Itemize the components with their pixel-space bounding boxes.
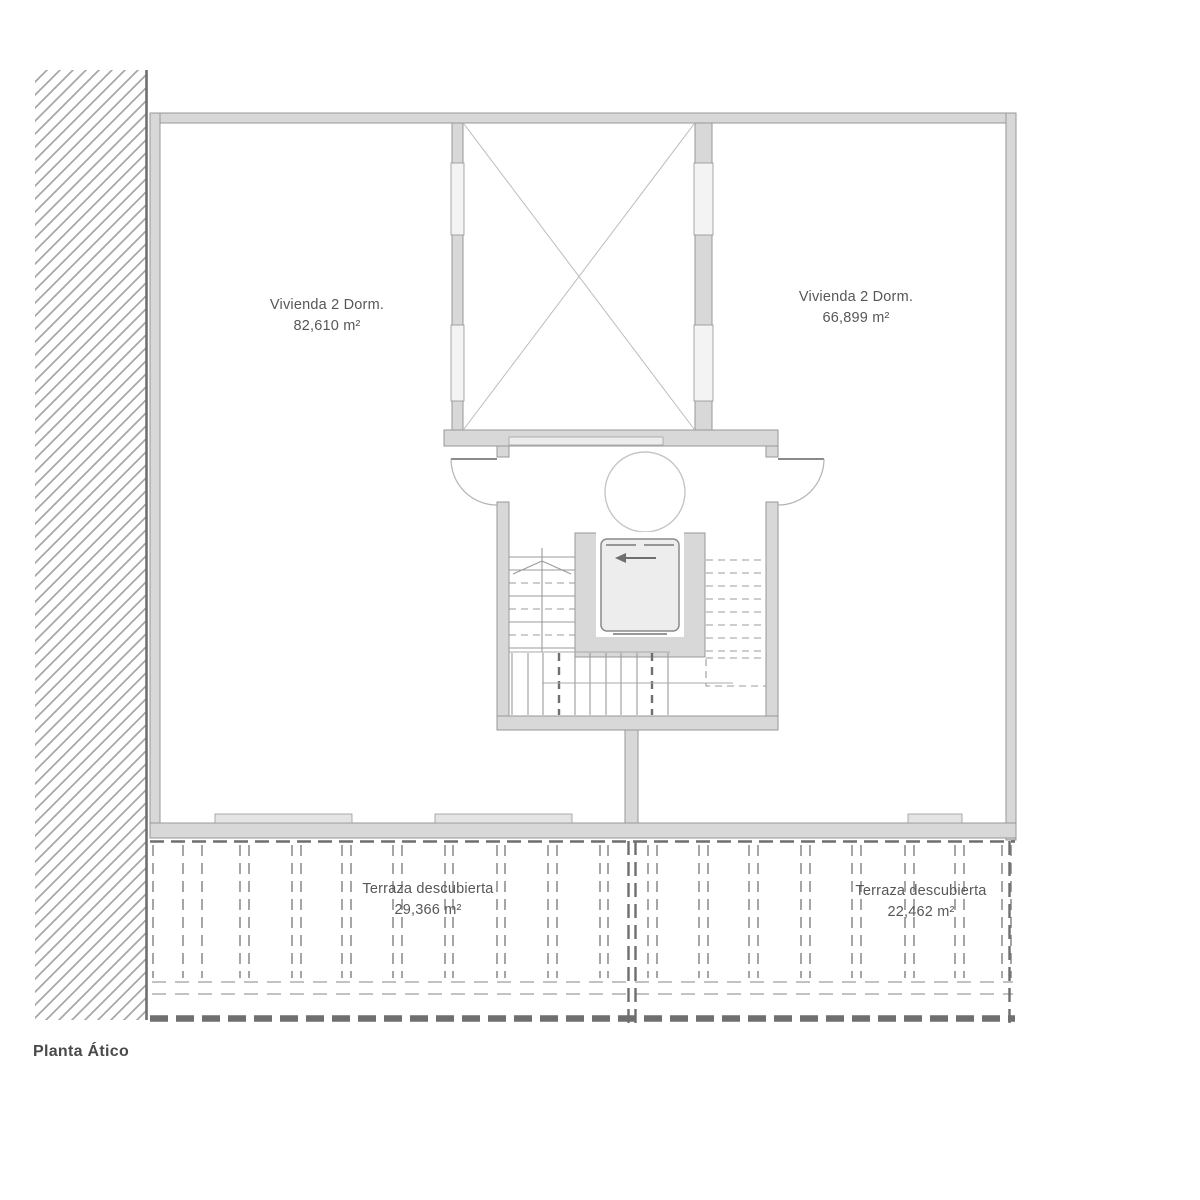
room-area: 29,366 m²	[362, 900, 493, 921]
room-name: Vivienda 2 Dorm.	[799, 287, 913, 308]
terrace-boundaries	[150, 841, 1015, 1023]
adjacent-building-hatch	[35, 70, 147, 1020]
room-label-vivienda-right: Vivienda 2 Dorm. 66,899 m²	[799, 287, 913, 329]
page-title: Planta Ático	[33, 1043, 129, 1061]
room-area: 66,899 m²	[799, 308, 913, 329]
room-name: Terraza descubierta	[362, 879, 493, 900]
room-label-terraza-right: Terraza descubierta 22,462 m²	[855, 881, 986, 923]
door-right	[778, 459, 824, 505]
stair-flight-right	[706, 560, 766, 651]
elevator-cab	[601, 539, 679, 631]
skylight-circle	[605, 452, 685, 532]
shaft-window	[451, 325, 464, 401]
room-name: Vivienda 2 Dorm.	[270, 295, 384, 316]
landing-doors	[451, 459, 824, 505]
window-sill	[215, 814, 352, 823]
floor-plan-drawing	[0, 0, 1200, 1200]
shaft-window	[451, 163, 464, 235]
room-label-terraza-left: Terraza descubierta 29,366 m²	[362, 879, 493, 921]
floor-plan-canvas: Vivienda 2 Dorm. 82,610 m² Vivienda 2 Do…	[0, 0, 1200, 1200]
exterior-walls	[150, 113, 1016, 840]
elevator	[575, 532, 705, 657]
room-area: 82,610 m²	[270, 316, 384, 337]
shaft-window	[694, 163, 713, 235]
lightwell-shaft	[451, 123, 713, 430]
stair-flight-bottom	[512, 653, 668, 715]
door-left	[451, 459, 497, 505]
window-sill	[908, 814, 962, 823]
room-area: 22,462 m²	[855, 902, 986, 923]
shaft-window	[694, 325, 713, 401]
room-label-vivienda-left: Vivienda 2 Dorm. 82,610 m²	[270, 295, 384, 337]
room-name: Terraza descubierta	[855, 881, 986, 902]
window-sill	[435, 814, 572, 823]
